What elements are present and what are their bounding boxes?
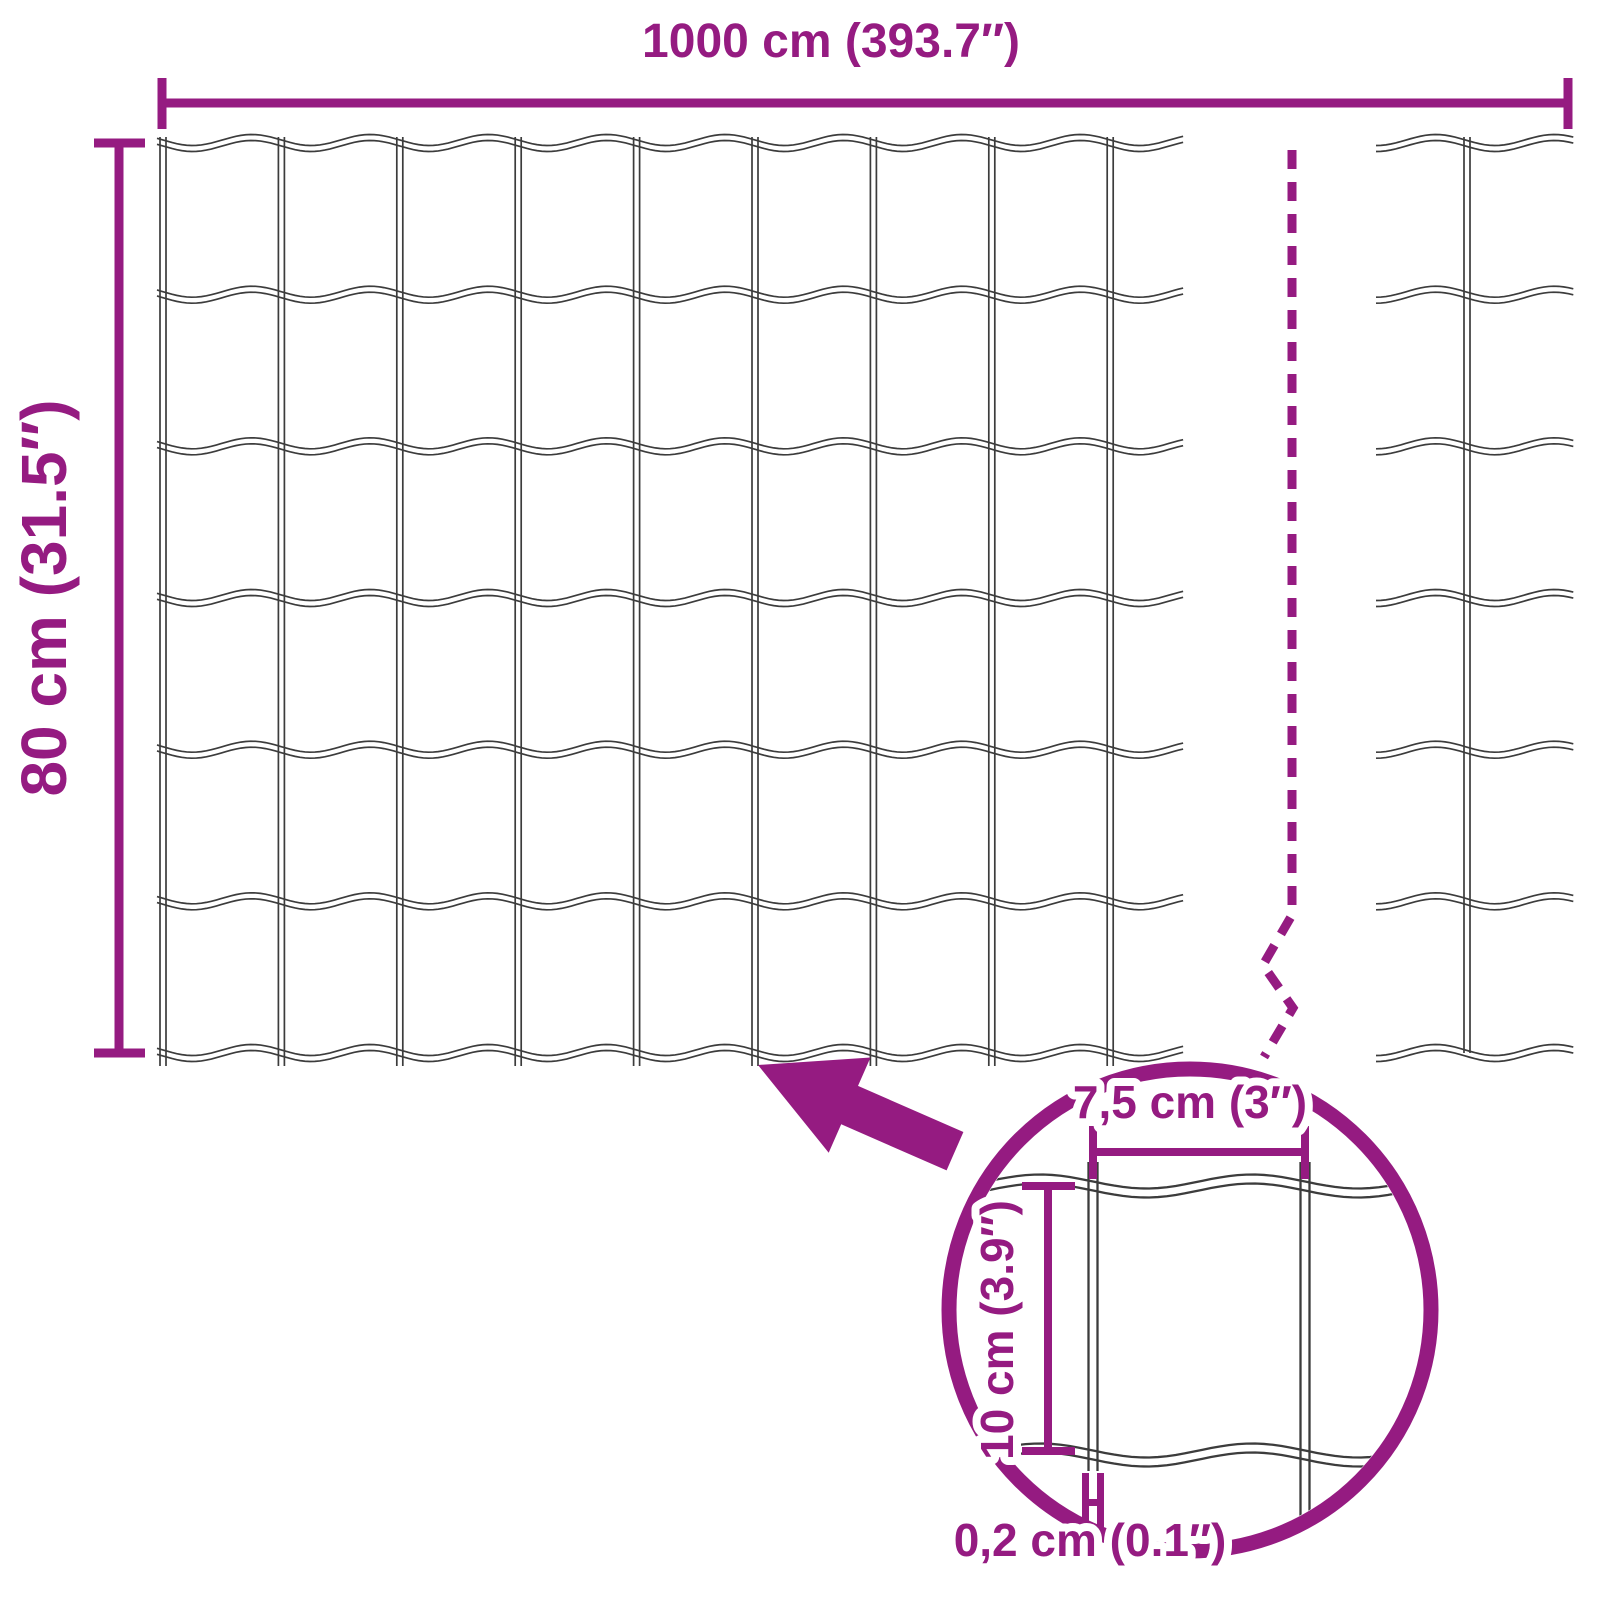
- detail-height-tick-top: [1022, 1182, 1075, 1190]
- horizontal-wavy-wire: [157, 286, 1183, 297]
- horizontal-wavy-wire: [157, 135, 1183, 146]
- width-dimension-tick-right: [1564, 78, 1573, 129]
- height-dimension-tick-bottom: [94, 1049, 145, 1058]
- wire-thickness-label: 0,2 cm (0.1″): [954, 1514, 1227, 1566]
- top-width-dimension: 1000 cm (393.7″): [158, 15, 1573, 129]
- horizontal-wavy-wire: [1376, 438, 1573, 449]
- horizontal-wavy-wire: [157, 438, 1183, 449]
- horizontal-wavy-wire: [157, 893, 1183, 904]
- horizontal-wavy-wire: [1376, 590, 1573, 601]
- detail-width-tick-left: [1089, 1126, 1097, 1179]
- horizontal-wavy-wire: [1376, 893, 1573, 904]
- magnifier-detail: 7,5 cm (3″) 10 cm (3.9″) 0,2 cm (0.1″): [946, 1069, 1432, 1566]
- horizontal-wavy-wire: [1376, 1045, 1573, 1056]
- break-dashed-line: [1263, 150, 1293, 1057]
- fence-dimension-diagram: 1000 cm (393.7″) 80 cm (31.5″): [0, 0, 1600, 1600]
- detail-width-tick-right: [1301, 1126, 1309, 1179]
- width-dimension-line: [162, 99, 1568, 108]
- diagram-canvas: 1000 cm (393.7″) 80 cm (31.5″): [0, 0, 1600, 1600]
- total-height-label: 80 cm (31.5″): [8, 399, 80, 796]
- height-dimension-line: [115, 143, 124, 1053]
- total-width-label: 1000 cm (393.7″): [642, 15, 1020, 68]
- horizontal-wavy-wire: [157, 590, 1183, 601]
- detail-height-tick-bottom: [1022, 1447, 1075, 1455]
- height-dimension-tick-top: [94, 139, 145, 148]
- horizontal-wavy-wire: [1376, 135, 1573, 146]
- left-height-dimension: 80 cm (31.5″): [8, 139, 145, 1058]
- mesh-width-label: 7,5 cm (3″): [1073, 1076, 1307, 1128]
- horizontal-wavy-wire: [1376, 286, 1573, 297]
- detail-width-line: [1093, 1148, 1305, 1156]
- horizontal-wavy-wire: [157, 1045, 1183, 1056]
- horizontal-wavy-wire: [157, 741, 1183, 752]
- fence-mesh: [157, 135, 1573, 1067]
- width-dimension-tick-left: [158, 78, 167, 129]
- thickness-cross-line: [1082, 1499, 1104, 1506]
- zoom-arrow: [758, 1058, 963, 1171]
- mesh-height-label: 10 cm (3.9″): [971, 1200, 1023, 1460]
- detail-height-line: [1044, 1186, 1052, 1455]
- horizontal-wavy-wire: [1376, 741, 1573, 752]
